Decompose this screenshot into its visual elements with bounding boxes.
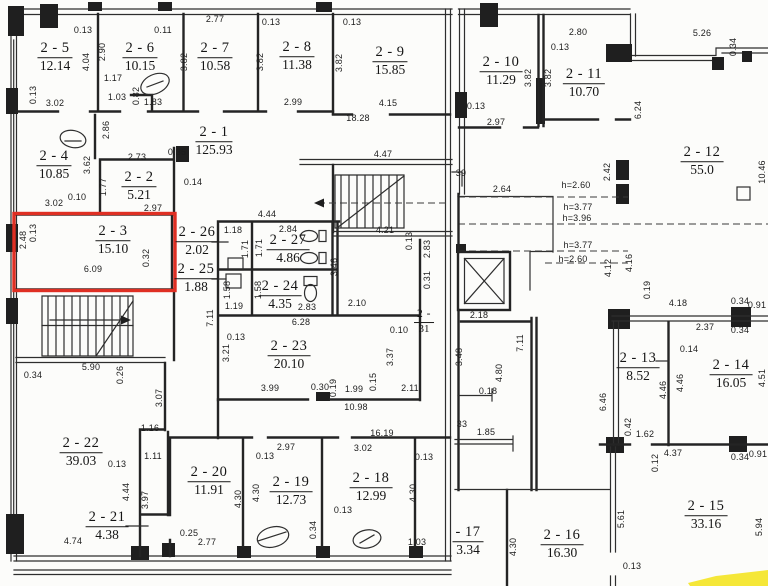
dimension-label: 4.44 xyxy=(258,209,276,219)
height-label: h=2.60 xyxy=(559,254,588,264)
room-label-2-5[interactable]: 2 - 512.14 xyxy=(37,41,72,73)
room-label-2-18[interactable]: 2 - 1812.99 xyxy=(350,471,393,503)
dimension-label: 0.19 xyxy=(642,281,652,299)
room-area: 15.10 xyxy=(95,241,130,256)
dimension-label: 7.11 xyxy=(515,334,525,352)
dimension-label: 0.14 xyxy=(680,344,698,354)
dimension-label: 0.18 xyxy=(479,386,497,396)
dimension-label: 0.19 xyxy=(328,379,338,397)
dimension-label: 2.48 xyxy=(18,231,28,249)
dimension-label: 1.16 xyxy=(141,423,159,433)
dimension-label: 0.34 xyxy=(731,296,749,306)
room-area: 55.0 xyxy=(681,162,724,177)
dimension-label: 2.42 xyxy=(602,163,612,181)
room-area: 4.38 xyxy=(86,527,129,542)
room-label-2-9[interactable]: 2 - 915.85 xyxy=(372,45,407,77)
dimension-label: 4.12 xyxy=(603,259,613,277)
dimension-label: 6.46 xyxy=(598,393,608,411)
room-label-2-12[interactable]: 2 - 1255.0 xyxy=(681,145,724,177)
room-number: 2 - 7 xyxy=(197,41,232,58)
dimension-label: 0.34 xyxy=(308,521,318,539)
room-number: 2 - 13 xyxy=(617,351,660,368)
dimension-label: 2.97 xyxy=(277,442,295,452)
room-area: 10.58 xyxy=(197,58,232,73)
room-label-2-7[interactable]: 2 - 710.58 xyxy=(197,41,232,73)
room-number: 2 - 23 xyxy=(268,339,311,356)
dimension-label: 3.82 xyxy=(334,54,344,72)
dimension-label: 2.86 xyxy=(101,121,111,139)
dimension-label: 0.34 xyxy=(728,38,738,56)
dimension-label: 0.13 xyxy=(262,17,280,27)
dimension-label: 0.82 xyxy=(131,87,141,105)
dimension-label: 16.19 xyxy=(370,428,394,438)
room-area: 10.85 xyxy=(36,166,71,181)
dimension-label: 39 xyxy=(456,168,466,178)
room-area: 39.03 xyxy=(60,453,103,468)
room-area: 20.10 xyxy=(268,356,311,371)
dimension-label: 1.62 xyxy=(636,429,654,439)
room-number: 2 - xyxy=(414,309,434,323)
room-label-2-21[interactable]: 2 - 214.38 xyxy=(86,510,129,542)
room-number: 2 - 19 xyxy=(270,475,313,492)
dimension-label: 1.77 xyxy=(98,178,108,196)
room-label-2-6[interactable]: 2 - 610.15 xyxy=(122,41,157,73)
dimension-label: 2.18 xyxy=(470,310,488,320)
room-area: 3.34 xyxy=(453,542,484,557)
dimension-label: 0.13 xyxy=(623,561,641,571)
room-number: 2 - 5 xyxy=(37,41,72,58)
room-label-2-[interactable]: 2 -31 xyxy=(414,309,434,335)
dimension-label: 6.28 xyxy=(292,317,310,327)
dimension-label: 3.37 xyxy=(385,348,395,366)
dimension-label: 0.13 xyxy=(343,17,361,27)
room-number: 2 - 20 xyxy=(188,465,231,482)
dimension-label: 2.90 xyxy=(97,43,107,61)
dimension-label: 4.30 xyxy=(251,484,261,502)
room-label-2-1[interactable]: 2 - 1125.93 xyxy=(195,125,232,157)
dimension-label: 3.82 xyxy=(179,53,189,71)
dimension-label: 3.99 xyxy=(261,383,279,393)
dimension-label: 4.16 xyxy=(624,254,634,272)
dimension-label: 2.97 xyxy=(144,203,162,213)
dimension-label: 0.13 xyxy=(467,101,485,111)
height-label: h=3.96 xyxy=(563,213,592,223)
room-label-2-14[interactable]: 2 - 1416.05 xyxy=(710,358,753,390)
dimension-label: 4.80 xyxy=(494,364,504,382)
room-number: 2 - 3 xyxy=(95,224,130,241)
dimension-label: 0.34 xyxy=(731,452,749,462)
room-area: 2.02 xyxy=(176,242,219,257)
room-number: 2 - 21 xyxy=(86,510,129,527)
dimension-label: 1.03 xyxy=(408,537,426,547)
room-label-2-3[interactable]: 2 - 315.10 xyxy=(95,224,130,256)
room-label-2-26[interactable]: 2 - 262.02 xyxy=(176,225,219,257)
dimension-label: 3.46 xyxy=(329,258,339,276)
dimension-label: 3.07 xyxy=(154,389,164,407)
dimension-label: 5.26 xyxy=(693,28,711,38)
dimension-label: 4.30 xyxy=(233,490,243,508)
room-label-2-11[interactable]: 2 - 1110.70 xyxy=(563,67,605,99)
dimension-label: 0.26 xyxy=(115,366,125,384)
room-number: 2 - 22 xyxy=(60,436,103,453)
room-area: 33.16 xyxy=(685,516,728,531)
dimension-label: 4.44 xyxy=(121,483,131,501)
dimension-label: 0.14 xyxy=(184,177,202,187)
room-number: 2 - 6 xyxy=(122,41,157,58)
dimension-label: 3.82 xyxy=(523,69,533,87)
room-label-2-24[interactable]: 2 - 244.35 xyxy=(259,279,302,311)
dimension-label: 4.46 xyxy=(675,374,685,392)
dimension-label: 7.11 xyxy=(205,309,215,327)
dimension-label: 1.83 xyxy=(144,97,162,107)
dimension-label: 1.58 xyxy=(222,281,232,299)
room-label-2-2[interactable]: 2 - 25.21 xyxy=(121,170,156,202)
dimension-label: 0.12 xyxy=(650,454,660,472)
dimension-label: 4.37 xyxy=(664,448,682,458)
dimension-label: 0.31 xyxy=(422,271,432,289)
dimension-label: 0.34 xyxy=(24,370,42,380)
dimension-label: 3.97 xyxy=(140,491,150,509)
room-area: 4.35 xyxy=(259,296,302,311)
room-number: 2 - 1 xyxy=(195,125,232,142)
dimension-label: 0.13 xyxy=(334,505,352,515)
dimension-label: 33 xyxy=(457,419,467,429)
dimension-label: 2.11 xyxy=(401,383,419,393)
dimension-label: 0.32 xyxy=(141,249,151,267)
room-number: 2 - 26 xyxy=(176,225,219,242)
dimension-label: 3.82 xyxy=(543,69,553,87)
dimension-label: 0.34 xyxy=(731,325,749,335)
dimension-label: 0.11 xyxy=(154,25,172,35)
room-area: 8.52 xyxy=(617,368,660,383)
room-number: 2 - 8 xyxy=(279,40,314,57)
room-label-2-23[interactable]: 2 - 2320.10 xyxy=(268,339,311,371)
room-number: 2 - 18 xyxy=(350,471,393,488)
room-number: 2 - 2 xyxy=(121,170,156,187)
room-area: 11.38 xyxy=(279,57,314,72)
dimension-label: 3.02 xyxy=(354,443,372,453)
dimension-label: 0.13 xyxy=(415,452,433,462)
room-label-2-4[interactable]: 2 - 410.85 xyxy=(36,149,71,181)
dimension-label: 0.30 xyxy=(311,382,329,392)
height-label: h=3.77 xyxy=(564,202,593,212)
dimension-label: 1.71 xyxy=(254,239,264,257)
room-area: 1.88 xyxy=(175,279,218,294)
dimension-label: 0.25 xyxy=(180,528,198,538)
room-label-2-8[interactable]: 2 - 811.38 xyxy=(279,40,314,72)
room-area: 5.21 xyxy=(121,187,156,202)
room-area: 10.70 xyxy=(563,84,605,99)
dimension-label: 2.77 xyxy=(206,14,224,24)
dimension-label: 2.97 xyxy=(487,117,505,127)
room-number: 2 - 9 xyxy=(372,45,407,62)
dimension-label: 4.15 xyxy=(379,98,397,108)
room-number: 2 - 12 xyxy=(681,145,724,162)
dimension-label: 2.10 xyxy=(348,298,366,308)
room-area: 11.91 xyxy=(188,482,231,497)
room-area: 16.30 xyxy=(541,545,584,560)
dimension-label: 2.77 xyxy=(198,537,216,547)
label-layer: 2 - 512.142 - 610.152 - 710.582 - 811.38… xyxy=(0,0,768,586)
dimension-label: 2.73 xyxy=(128,152,146,162)
dimension-label: 3.48 xyxy=(454,348,464,366)
dimension-label: 1.17 xyxy=(104,73,122,83)
dimension-label: 5.94 xyxy=(754,518,764,536)
dimension-label: 2.80 xyxy=(569,27,587,37)
dimension-label: 0.13 xyxy=(551,42,569,52)
dimension-label: 3.62 xyxy=(82,156,92,174)
room-number: 2 - 16 xyxy=(541,528,584,545)
dimension-label: 1.03 xyxy=(108,92,126,102)
room-label-2-15[interactable]: 2 - 1533.16 xyxy=(685,499,728,531)
room-area: 12.99 xyxy=(350,488,393,503)
room-label--17[interactable]: - 173.34 xyxy=(453,525,484,557)
floorplan-page: 2 - 512.142 - 610.152 - 710.582 - 811.38… xyxy=(0,0,768,586)
room-label-2-20[interactable]: 2 - 2011.91 xyxy=(188,465,231,497)
dimension-label: 4.47 xyxy=(374,149,392,159)
dimension-label: 0.35 xyxy=(168,147,186,157)
dimension-label: 6.24 xyxy=(633,101,643,119)
dimension-label: 1.71 xyxy=(240,240,250,258)
room-label-2-27[interactable]: 2 - 274.86 xyxy=(267,233,310,265)
dimension-label: 4.30 xyxy=(508,538,518,556)
dimension-label: 1.11 xyxy=(144,451,162,461)
dimension-label: 0.13 xyxy=(227,332,245,342)
room-number: 2 - 14 xyxy=(710,358,753,375)
room-area: 4.86 xyxy=(267,250,310,265)
dimension-label: 0.13 xyxy=(404,232,414,250)
height-label: h=2.60 xyxy=(562,180,591,190)
dimension-label: 3.82 xyxy=(255,53,265,71)
room-number: 2 - 15 xyxy=(685,499,728,516)
room-label-2-25[interactable]: 2 - 251.88 xyxy=(175,262,218,294)
dimension-label: 3.21 xyxy=(221,344,231,362)
dimension-label: 18.28 xyxy=(346,113,370,123)
room-number: 2 - 27 xyxy=(267,233,310,250)
room-label-2-13[interactable]: 2 - 138.52 xyxy=(617,351,660,383)
dimension-label: 6.09 xyxy=(84,264,102,274)
room-number: 2 - 11 xyxy=(563,67,605,84)
dimension-label: 4.04 xyxy=(81,53,91,71)
dimension-label: 0.13 xyxy=(256,451,274,461)
room-area: 16.05 xyxy=(710,375,753,390)
dimension-label: 0.10 xyxy=(68,192,86,202)
room-area: 11.29 xyxy=(480,72,523,87)
dimension-label: 3.02 xyxy=(45,198,63,208)
dimension-label: 0.91 xyxy=(748,300,766,310)
room-area: 12.14 xyxy=(37,58,72,73)
dimension-label: 1.18 xyxy=(224,225,242,235)
dimension-label: 0.10 xyxy=(390,325,408,335)
room-area: 125.93 xyxy=(195,142,232,157)
dimension-label: 0.15 xyxy=(368,373,378,391)
dimension-label: 2.64 xyxy=(493,184,511,194)
dimension-label: 4.21 xyxy=(376,225,394,235)
dimension-label: 4.30 xyxy=(408,484,418,502)
dimension-label: 5.61 xyxy=(616,510,626,528)
dimension-label: 10.98 xyxy=(344,402,368,412)
room-number: 2 - 25 xyxy=(175,262,218,279)
dimension-label: 10.46 xyxy=(757,160,767,184)
room-area: 12.73 xyxy=(270,492,313,507)
dimension-label: 0.42 xyxy=(623,418,633,436)
room-number: 2 - 4 xyxy=(36,149,71,166)
height-label: h=3.77 xyxy=(564,240,593,250)
dimension-label: 5.90 xyxy=(82,362,100,372)
room-number: 2 - 24 xyxy=(259,279,302,296)
dimension-label: 2.99 xyxy=(284,97,302,107)
dimension-label: 0.13 xyxy=(108,459,126,469)
room-number: 2 - 10 xyxy=(480,55,523,72)
dimension-label: 0.13 xyxy=(28,86,38,104)
dimension-label: 2.37 xyxy=(696,322,714,332)
dimension-label: 4.18 xyxy=(669,298,687,308)
dimension-label: 4.46 xyxy=(658,381,668,399)
room-area: 31 xyxy=(414,323,434,335)
room-label-2-22[interactable]: 2 - 2239.03 xyxy=(60,436,103,468)
dimension-label: 2.83 xyxy=(422,240,432,258)
dimension-label: 0.91 xyxy=(749,449,767,459)
dimension-label: 0.13 xyxy=(74,25,92,35)
dimension-label: 1.85 xyxy=(477,427,495,437)
dimension-label: 0.13 xyxy=(28,224,38,242)
room-label-2-19[interactable]: 2 - 1912.73 xyxy=(270,475,313,507)
dimension-label: 3.02 xyxy=(46,98,64,108)
room-label-2-16[interactable]: 2 - 1616.30 xyxy=(541,528,584,560)
room-area: 10.15 xyxy=(122,58,157,73)
room-number: - 17 xyxy=(453,525,484,542)
dimension-label: 4.74 xyxy=(64,536,82,546)
room-area: 15.85 xyxy=(372,62,407,77)
dimension-label: 1.19 xyxy=(225,301,243,311)
dimension-label: 4.51 xyxy=(757,369,767,387)
room-label-2-10[interactable]: 2 - 1011.29 xyxy=(480,55,523,87)
dimension-label: 1.99 xyxy=(345,384,363,394)
